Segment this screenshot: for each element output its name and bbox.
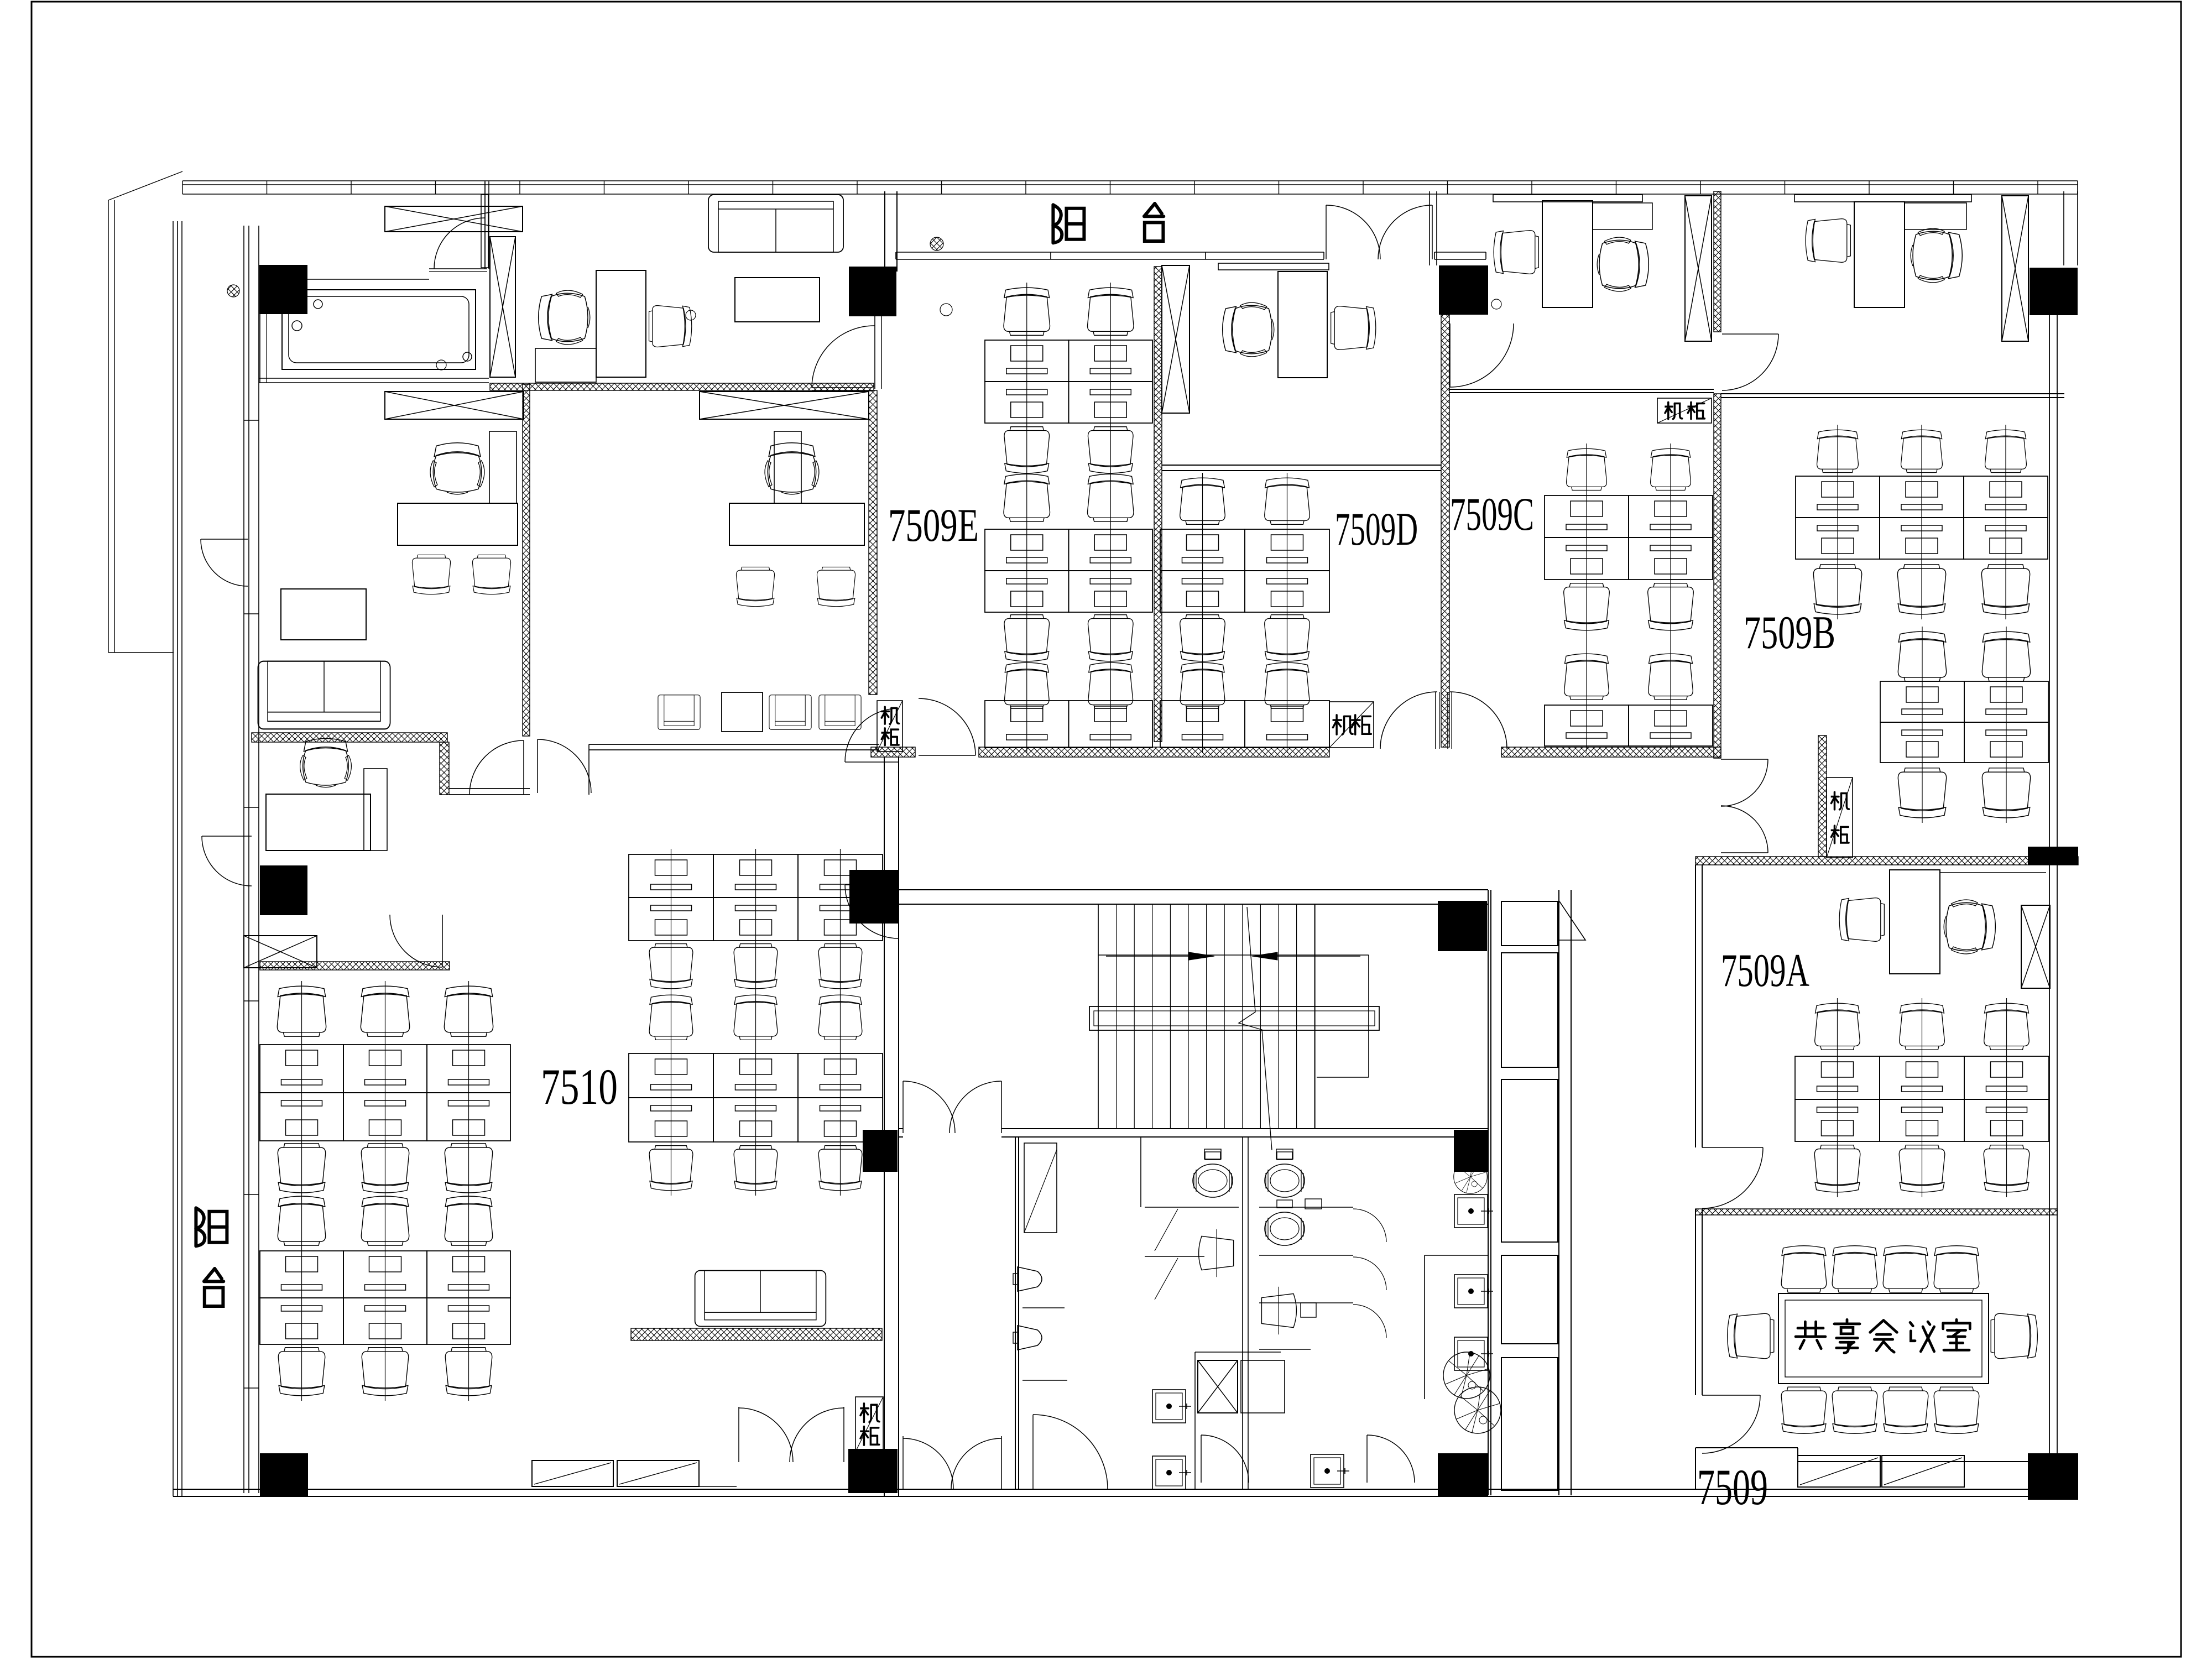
svg-text:7510: 7510 <box>541 1058 618 1115</box>
svg-text:7509C: 7509C <box>1450 488 1534 540</box>
svg-text:7509B: 7509B <box>1744 607 1835 659</box>
svg-text:7509E: 7509E <box>888 499 979 551</box>
svg-text:7509D: 7509D <box>1335 503 1418 555</box>
svg-text:7509A: 7509A <box>1721 945 1809 997</box>
svg-text:7509: 7509 <box>1697 1459 1768 1515</box>
